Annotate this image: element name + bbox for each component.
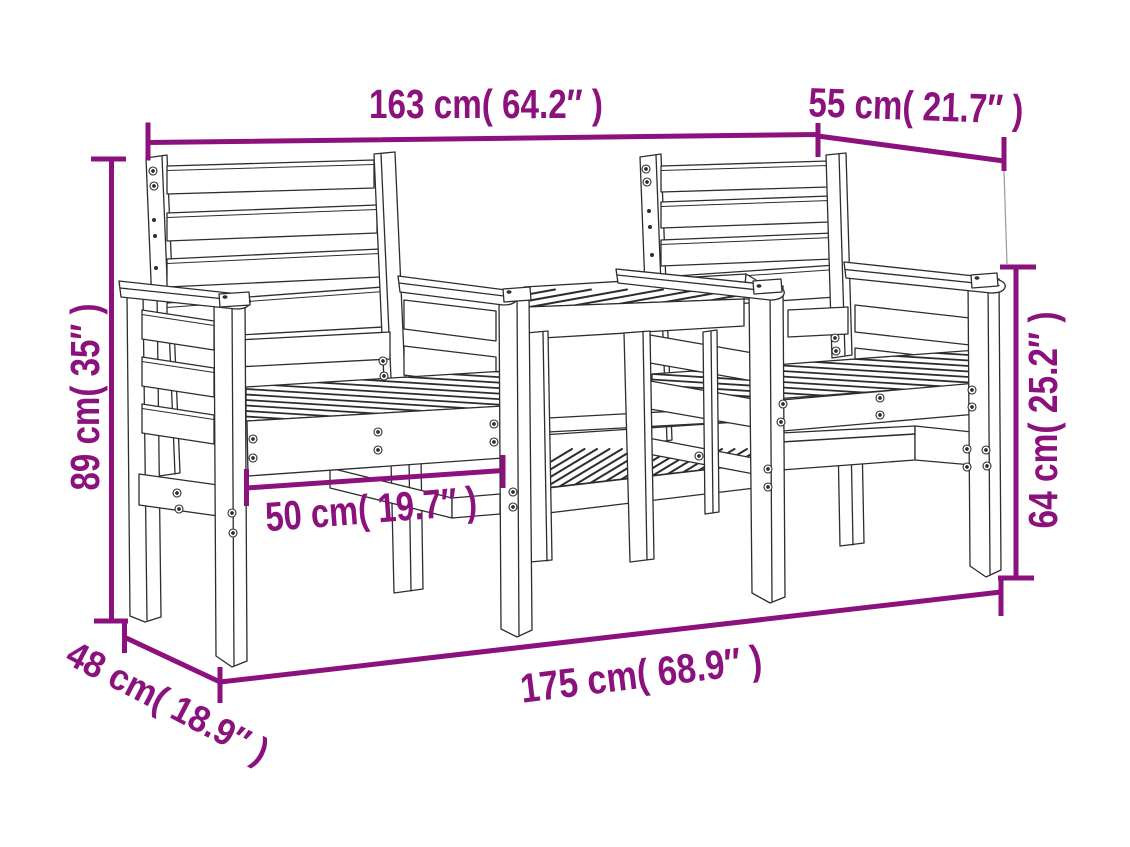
svg-text:89 cm( 35″ ): 89 cm( 35″ ) xyxy=(62,304,108,491)
svg-text:64 cm( 25.2″ ): 64 cm( 25.2″ ) xyxy=(1020,312,1066,529)
svg-text:163 cm( 64.2″ ): 163 cm( 64.2″ ) xyxy=(369,81,603,127)
svg-text:55 cm( 21.7″ ): 55 cm( 21.7″ ) xyxy=(808,79,1024,132)
svg-text:175 cm( 68.9″ ): 175 cm( 68.9″ ) xyxy=(518,636,765,711)
